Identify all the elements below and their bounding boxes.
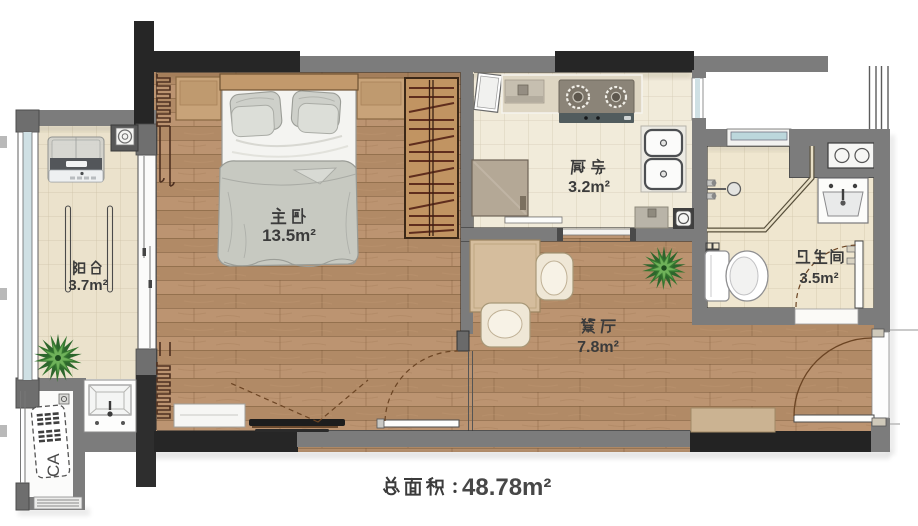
svg-text:3.5m²: 3.5m² xyxy=(799,270,838,287)
svg-text:CA: CA xyxy=(44,453,63,477)
svg-text:3.2m²: 3.2m² xyxy=(568,179,610,196)
svg-text:3.7m²: 3.7m² xyxy=(68,277,107,294)
svg-text:7.8m²: 7.8m² xyxy=(577,339,619,356)
svg-text:13.5m²: 13.5m² xyxy=(262,226,316,245)
svg-text:48.78m²: 48.78m² xyxy=(462,474,551,501)
